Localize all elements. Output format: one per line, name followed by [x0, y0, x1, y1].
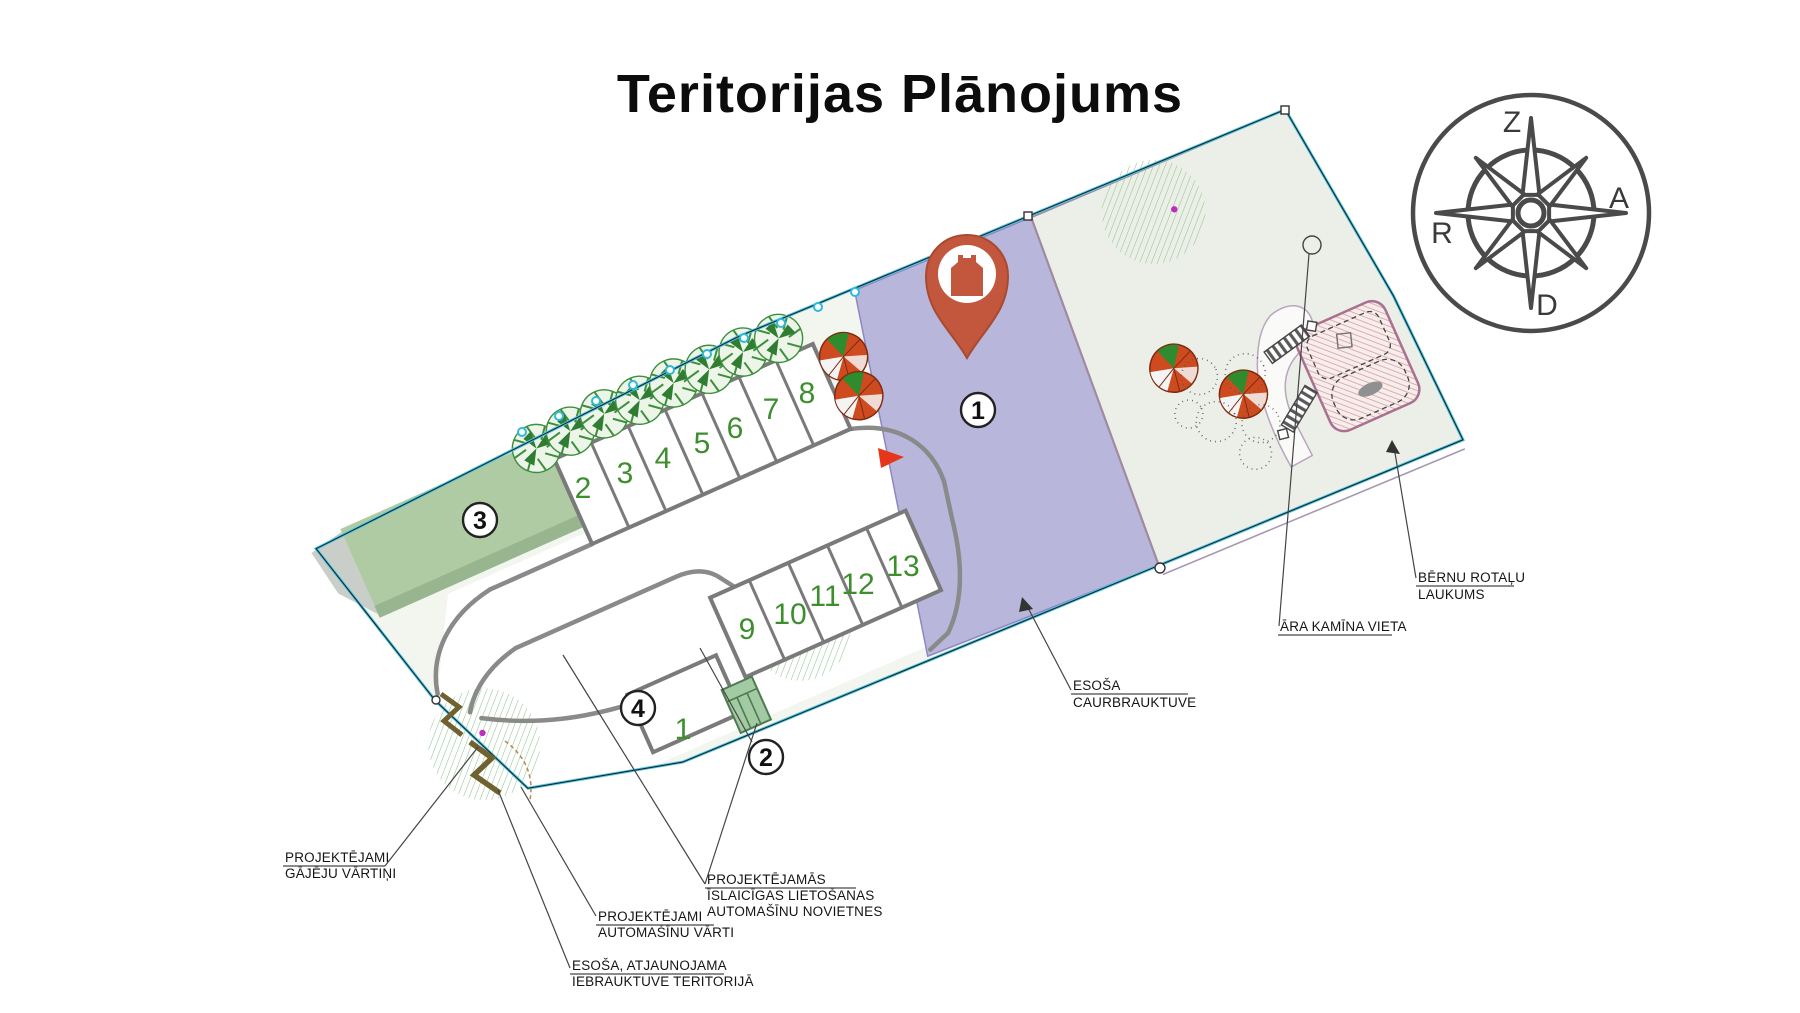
label-line: GĀJĒJU VĀRTIŅI — [285, 866, 396, 881]
area-marker-4: 4 — [621, 691, 655, 725]
compass-north-label: Z — [1503, 106, 1521, 139]
area-marker-label: 1 — [971, 397, 985, 425]
stall-number: 12 — [841, 568, 874, 601]
stall-number: 4 — [655, 442, 672, 475]
compass-west-label: R — [1431, 217, 1453, 250]
corner-node — [432, 696, 440, 704]
area-marker-label: 3 — [473, 507, 487, 535]
corner-node — [1155, 563, 1165, 573]
corner-node — [1281, 106, 1289, 114]
label-line: AUTOMAŠĪNU VĀRTI — [598, 925, 734, 940]
label-line: BĒRNU ROTAĻU — [1418, 570, 1525, 585]
label-line: LAUKUMS — [1418, 587, 1485, 602]
stall-number: 2 — [575, 472, 592, 505]
stall-number: 10 — [773, 598, 806, 631]
label-line: PROJEKTĒJAMI — [598, 909, 702, 924]
site-plan-canvas: 1 2 3 4 2 3 4 5 6 7 8 9 10 11 12 13 1 PR… — [0, 0, 1800, 1013]
label-line: ĀRA KAMĪNA VIETA — [1280, 619, 1407, 634]
label-line: ĪSLAICĪGAS LIETOŠANAS — [707, 888, 875, 903]
corner-node — [1024, 212, 1032, 220]
stall-number: 13 — [886, 550, 919, 583]
area-marker-2: 2 — [749, 740, 783, 774]
stall-number: 3 — [617, 457, 634, 490]
area-marker-label: 2 — [759, 744, 773, 772]
stall-number: 11 — [809, 580, 840, 613]
label-through-drive: ESOŠA CAURBRAUKTUVE — [1019, 597, 1196, 710]
label-line: CAURBRAUKTUVE — [1073, 695, 1196, 710]
stall-number: 8 — [799, 377, 816, 410]
label-line: PROJEKTĒJAMI — [285, 850, 389, 865]
label-line: AUTOMAŠĪNU NOVIETNES — [707, 904, 883, 919]
label-line: IEBRAUKTUVE TERITORIJĀ — [572, 974, 754, 989]
area-marker-3: 3 — [463, 503, 497, 537]
compass-east-label: A — [1609, 182, 1629, 215]
label-line: ESOŠA — [1073, 678, 1121, 693]
stall-number: 7 — [763, 393, 780, 426]
area-marker-1: 1 — [961, 393, 995, 427]
area-marker-label: 4 — [631, 695, 645, 723]
stall-number: 5 — [694, 427, 711, 460]
label-line: ESOŠA, ATJAUNOJAMA — [572, 958, 727, 973]
page-title: Teritorijas Plānojums — [617, 64, 1183, 124]
stall-number: 9 — [739, 613, 756, 646]
compass-rose: Z A D R — [1413, 95, 1649, 331]
compass-south-label: D — [1536, 289, 1558, 322]
stall-number: 1 — [675, 713, 692, 746]
label-line: PROJEKTĒJAMĀS — [707, 872, 826, 887]
stall-number: 6 — [727, 412, 744, 445]
